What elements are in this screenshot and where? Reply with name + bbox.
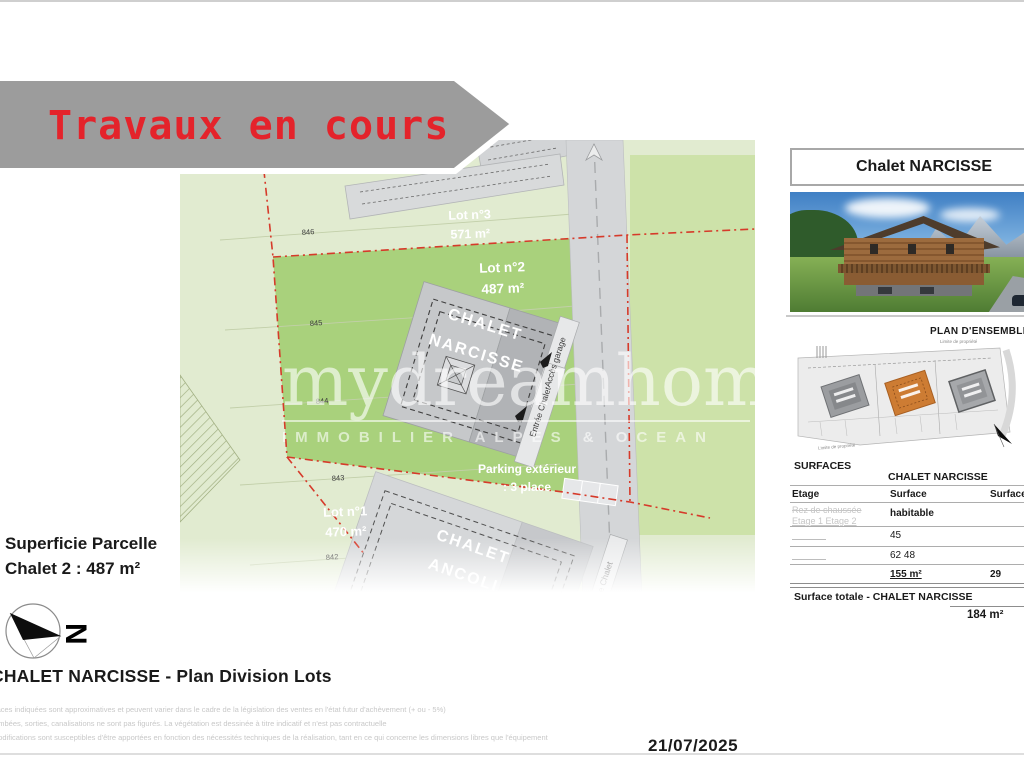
compass-north-letter: N	[59, 623, 92, 645]
panel-divider	[786, 315, 1024, 317]
plan-bottom-fade	[180, 538, 755, 600]
site-plan: 846 845 844 843 842 Lot n°3 571 m² Lot n…	[180, 140, 755, 600]
etage-placeholder-1: Rez de chaussée	[792, 505, 862, 515]
surfaces-heading: SURFACES	[794, 460, 851, 472]
surfaces-subject: CHALET NARCISSE	[888, 471, 988, 483]
lot2-label: Lot n°2 487 m²	[454, 256, 550, 301]
surface-habitable: habitable	[890, 508, 934, 519]
etage-placeholder-2: Etage 1 Etage 2	[792, 516, 857, 526]
bottom-divider	[0, 753, 1024, 755]
surface-value-2: 62 48	[890, 550, 915, 561]
total-surface: 155 m²	[890, 569, 922, 580]
plan-ensemble-title: PLAN D'ENSEMBLE	[930, 326, 1024, 337]
lot2-area: 487 m²	[455, 277, 551, 301]
superficie-line1: Superficie Parcelle	[5, 532, 157, 557]
lot3-label: Lot n°3 571 m²	[424, 204, 515, 246]
chalet-photo	[790, 192, 1024, 312]
plan-caption: CHALET NARCISSE - Plan Division Lots	[0, 666, 332, 687]
col-surface: Surface	[890, 489, 927, 500]
disclaimer-line-1: rfaces indiquées sont approximatives et …	[0, 705, 446, 714]
watermark: mydreamhome IMMOBILIER ALPES & OCEAN	[282, 346, 762, 446]
disclaimer-line-2: tombées, sorties, canalisations ne sont …	[0, 719, 387, 728]
grand-total: 184 m²	[967, 609, 1003, 621]
compass: N	[4, 598, 114, 670]
watermark-tagline: IMMOBILIER ALPES & OCEAN	[282, 420, 750, 446]
banner-label: Travaux en cours	[48, 103, 449, 149]
top-divider	[0, 0, 1024, 2]
disclaimer-line-3: modifications sont susceptibles d'être a…	[0, 733, 548, 742]
photo-chalet	[830, 216, 1000, 296]
contour-843: 843	[332, 473, 345, 483]
photo-cloud	[845, 198, 930, 218]
watermark-brand: mydreamhome	[282, 346, 762, 416]
superficie-block: Superficie Parcelle Chalet 2 : 487 m²	[5, 532, 157, 581]
contour-846: 846	[302, 227, 315, 237]
col-etage: Etage	[792, 489, 819, 500]
page: { "page": { "banner_label": "Travaux en …	[0, 0, 1024, 768]
contour-845: 845	[310, 318, 323, 328]
total-label: Surface totale - CHALET NARCISSE	[794, 591, 973, 603]
plan-ensemble: PLAN D'ENSEMBLE Limite de propriété	[790, 322, 1024, 455]
photo-car	[1012, 295, 1024, 306]
parking-line1: Parking extérieur	[452, 460, 602, 478]
col-surface-right: Surface	[990, 489, 1024, 500]
plan-ensemble-drawing	[790, 344, 1024, 454]
double-rule	[790, 583, 1024, 588]
mini-barcode	[817, 346, 826, 358]
parking-line2: : 3 place	[452, 478, 602, 496]
surface-value-1: 45	[890, 530, 901, 541]
surfaces-table: SURFACES CHALET NARCISSE Etage Surface S…	[790, 458, 1024, 623]
parking-label: Parking extérieur : 3 place	[452, 460, 602, 496]
superficie-line2: Chalet 2 : 487 m²	[5, 557, 157, 582]
lot3-area: 571 m²	[425, 224, 516, 247]
total-surface-right: 29	[990, 569, 1001, 580]
chalet-title-box: Chalet NARCISSE	[790, 148, 1024, 186]
